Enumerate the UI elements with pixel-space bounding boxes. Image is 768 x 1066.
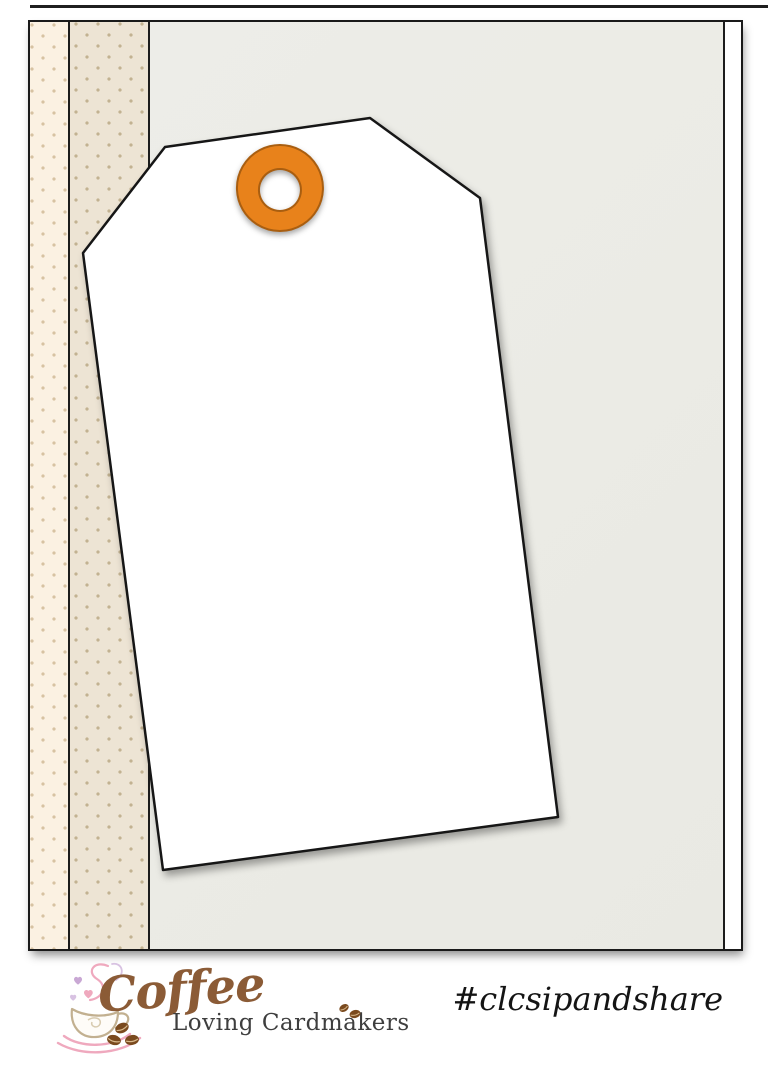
sketch-canvas: Coffee Loving Cardmakers #clcsipandshare bbox=[0, 0, 768, 1066]
heart-icon bbox=[70, 977, 93, 1001]
coffee-beans-small-icon bbox=[336, 1000, 364, 1022]
tag-overlay bbox=[0, 0, 768, 1066]
gift-tag-shape bbox=[83, 118, 558, 870]
hashtag-text: #clcsipandshare bbox=[420, 980, 723, 1018]
logo-subtitle-text: Loving Cardmakers bbox=[172, 1010, 410, 1036]
